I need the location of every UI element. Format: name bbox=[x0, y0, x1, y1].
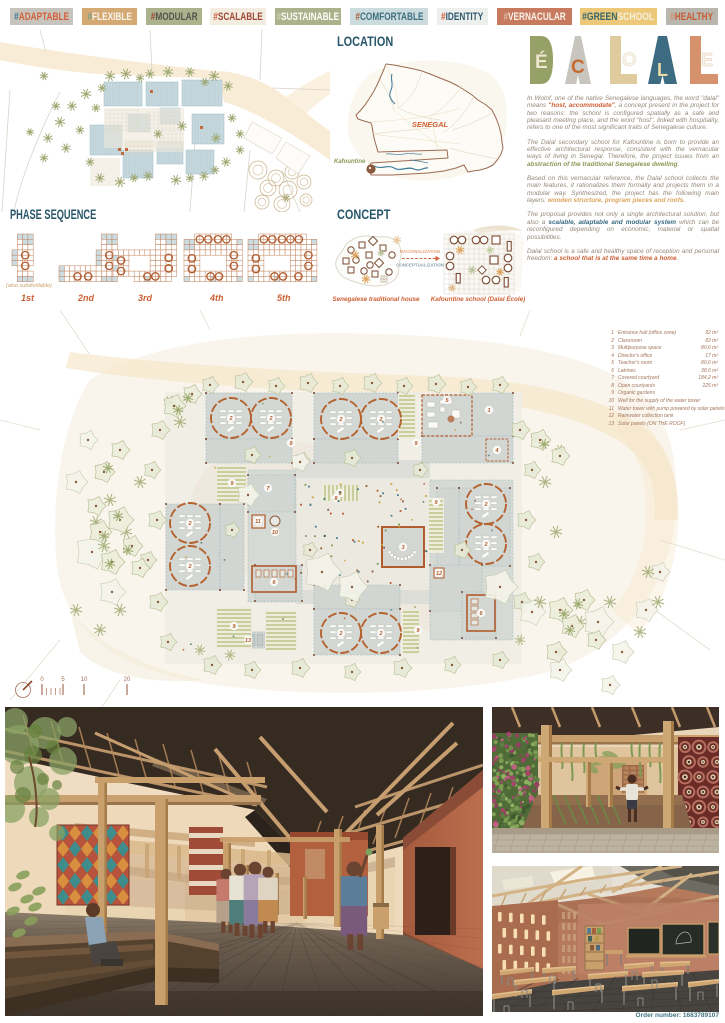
svg-text:2: 2 bbox=[338, 631, 342, 637]
svg-text:É: É bbox=[535, 51, 548, 73]
svg-text:4: 4 bbox=[494, 448, 498, 454]
svg-text:2: 2 bbox=[268, 416, 272, 422]
svg-text:11: 11 bbox=[255, 519, 261, 525]
svg-text:12: 12 bbox=[436, 571, 442, 577]
svg-text:2: 2 bbox=[483, 502, 487, 508]
svg-text:0: 0 bbox=[40, 677, 44, 683]
svg-text:SENEGAL: SENEGAL bbox=[412, 120, 449, 129]
svg-text:10: 10 bbox=[272, 530, 278, 536]
svg-text:Kafountine: Kafountine bbox=[334, 159, 366, 165]
svg-text:CONCEPTUALIZATION: CONCEPTUALIZATION bbox=[396, 263, 444, 268]
svg-text:20: 20 bbox=[124, 677, 131, 683]
svg-text:2: 2 bbox=[187, 564, 191, 570]
svg-text:3: 3 bbox=[401, 545, 404, 551]
svg-text:2: 2 bbox=[483, 542, 487, 548]
svg-text:C: C bbox=[571, 57, 585, 78]
svg-text:5: 5 bbox=[61, 677, 65, 683]
svg-text:13: 13 bbox=[245, 638, 251, 644]
svg-text:2: 2 bbox=[338, 417, 342, 423]
svg-text:2: 2 bbox=[187, 521, 191, 527]
svg-text:1: 1 bbox=[487, 408, 490, 414]
svg-text:RACIONALIZATION: RACIONALIZATION bbox=[400, 249, 440, 254]
svg-text:E: E bbox=[701, 50, 713, 70]
svg-text:2: 2 bbox=[228, 416, 232, 422]
svg-text:10: 10 bbox=[81, 677, 88, 683]
svg-text:L: L bbox=[657, 60, 668, 80]
svg-text:2: 2 bbox=[378, 631, 382, 637]
svg-text:O: O bbox=[622, 50, 637, 71]
svg-text:2: 2 bbox=[378, 417, 382, 423]
